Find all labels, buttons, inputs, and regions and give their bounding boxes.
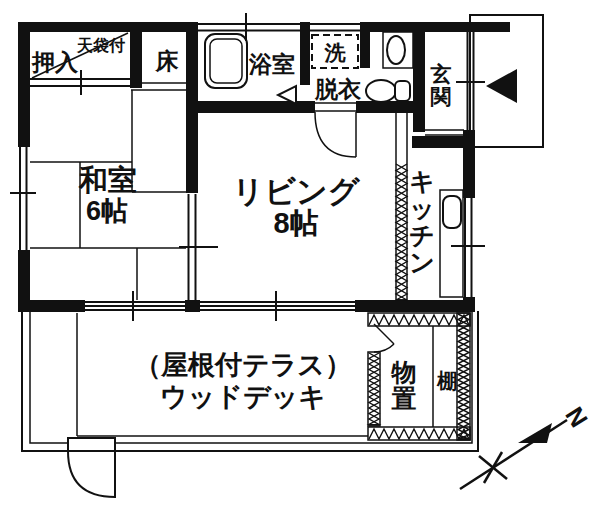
wall-segment xyxy=(355,300,475,312)
label-living-size: 8帖 xyxy=(273,207,318,239)
label-terrace-line2: ウッドデッキ xyxy=(160,382,326,412)
toilet-tank-icon xyxy=(395,81,410,101)
label-bathroom: 浴室 xyxy=(248,51,295,77)
wash-basin-icon xyxy=(387,36,405,64)
wall-segment xyxy=(130,32,142,88)
label-kitchen: キ xyxy=(409,167,435,195)
wall-segment xyxy=(18,22,30,147)
wall-segment xyxy=(360,22,370,68)
wall-segment xyxy=(186,32,198,193)
label-tenbukuro: 天袋付 xyxy=(76,37,125,54)
label-storage: 物 xyxy=(391,358,417,386)
label-terrace-line1: （屋根付テラス） xyxy=(134,350,352,380)
label-living-name: リビング xyxy=(233,174,361,209)
deck-gate xyxy=(68,438,115,451)
wall-segment xyxy=(356,101,413,113)
floor-plan-page: N 押入 天袋付 床 浴室 洗 脱衣 玄 関 和室 6帖 リビング 8帖 キ ッ… xyxy=(0,0,600,510)
label-toko: 床 xyxy=(155,48,179,74)
wall-segment xyxy=(360,22,510,32)
kitchen-sink-icon xyxy=(443,196,461,228)
label-kitchen: ッ xyxy=(409,194,435,222)
label-washer: 洗 xyxy=(324,41,347,64)
wall-segment xyxy=(198,101,315,113)
label-datsui: 脱衣 xyxy=(314,76,362,102)
label-kitchen: ン xyxy=(409,248,435,276)
label-genkan: 玄 xyxy=(430,62,452,85)
wall-segment xyxy=(413,32,425,132)
label-washitsu-name: 和室 xyxy=(78,164,137,196)
wall-segment xyxy=(300,22,310,85)
wall-segment xyxy=(463,297,475,312)
label-storage: 置 xyxy=(391,384,417,412)
wall-segment xyxy=(18,22,198,32)
label-washitsu-size: 6帖 xyxy=(86,196,128,226)
label-genkan: 関 xyxy=(431,85,452,108)
wall-segment xyxy=(185,300,200,312)
floor-plan-drawing: N 押入 天袋付 床 浴室 洗 脱衣 玄 関 和室 6帖 リビング 8帖 キ ッ… xyxy=(0,0,600,510)
wall-segment xyxy=(412,136,475,148)
label-oshiire: 押入 xyxy=(31,49,79,75)
label-kitchen: チ xyxy=(409,221,435,249)
label-shelf: 棚 xyxy=(436,370,457,392)
wall-segment xyxy=(18,300,85,312)
toilet-bowl-icon xyxy=(366,80,396,102)
